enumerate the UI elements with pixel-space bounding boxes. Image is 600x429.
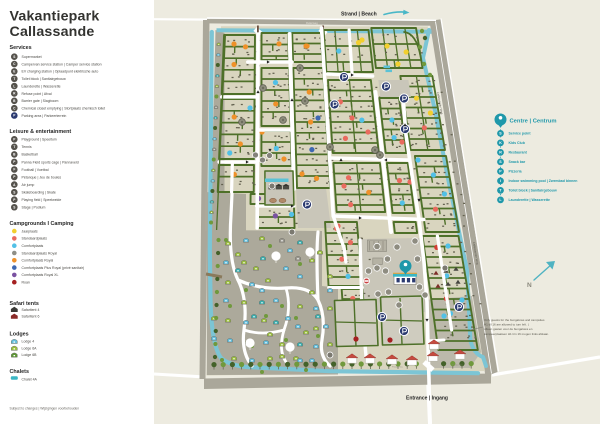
svg-text:Campgrounds I Camping: Campgrounds I Camping [10,221,74,227]
svg-text:Air jump: Air jump [22,183,35,187]
svg-text:Chalets: Chalets [10,369,29,375]
svg-text:Barrier gate | Slagboom: Barrier gate | Slagboom [22,99,59,103]
svg-text:Parking area | Parkeerterrein: Parking area | Parkeerterrein [22,114,67,118]
svg-text:Chemical closet emptying | Sto: Chemical closet emptying | Stortplaats c… [22,106,106,110]
svg-text:Only guests for the bungalows: Only guests for the bungalows and campsi… [484,318,545,322]
svg-text:Services: Services [10,45,32,51]
svg-text:S: S [13,55,15,59]
svg-text:Panna Field sports cage | Pann: Panna Field sports cage | Pannaveld [22,160,79,164]
svg-text:Campervan service station | Ca: Campervan service station | Camper servi… [22,62,102,66]
svg-text:Roan: Roan [22,281,30,285]
svg-text:K: K [499,141,502,145]
svg-text:Kids Club: Kids Club [509,141,525,145]
svg-text:Pétanque | Jeu de boules: Pétanque | Jeu de boules [22,175,62,179]
svg-text:L: L [13,84,15,88]
svg-text:Standaardplaats Royal: Standaardplaats Royal [22,251,58,255]
svg-text:kampeerplaatsen H1 t/m 16 moge: kampeerplaatsen H1 t/m 16 mogen links af… [484,332,549,336]
svg-text:Restaurant: Restaurant [509,151,528,155]
svg-text:S: S [13,190,15,194]
svg-text:Lodge 4: Lodge 4 [22,340,35,344]
svg-text:Strand | Beach: Strand | Beach [341,11,377,17]
svg-text:Lodge 6B: Lodge 6B [22,353,38,357]
svg-text:Jaarplaats: Jaarplaats [22,229,38,233]
svg-text:Service point: Service point [509,132,532,136]
svg-text:Playing field | Speelweide: Playing field | Speelweide [22,198,62,202]
svg-text:Callassande: Callassande [10,24,95,40]
svg-text:Launderette | Wasserette: Launderette | Wasserette [509,198,551,202]
svg-text:Refuse point | Afval: Refuse point | Afval [22,92,52,96]
svg-text:Pizzeria: Pizzeria [509,170,522,174]
svg-text:Toilet block | Sanitairgebouw: Toilet block | Sanitairgebouw [509,189,557,193]
svg-text:Standaardplaats: Standaardplaats [22,237,48,241]
svg-text:Football | Voetbal: Football | Voetbal [22,168,49,172]
svg-text:Toilet block | Sanitairgebouw: Toilet block | Sanitairgebouw [22,77,67,81]
svg-text:I: I [500,179,501,183]
svg-text:Comfortplaats Plus Royal (priv: Comfortplaats Plus Royal (privé sanitair… [22,266,85,270]
svg-text:Ruiterweg: Ruiterweg [306,21,318,25]
svg-text:Indoor swimming pool | Zwembad: Indoor swimming pool | Zwembad binnen [509,179,578,183]
svg-text:S: S [13,205,15,209]
svg-text:Subject to changes | Wijziging: Subject to changes | Wijzigingen voorbeh… [10,407,80,411]
svg-text:T: T [13,77,15,81]
svg-text:Supermarket: Supermarket [22,55,42,59]
svg-text:E: E [13,70,15,74]
svg-text:Snack bar: Snack bar [509,160,526,164]
svg-text:Safaritent 6: Safaritent 6 [22,315,40,319]
svg-text:Basketball: Basketball [22,153,38,157]
svg-text:Centre | Centrum: Centre | Centrum [510,118,557,124]
svg-text:Vakantiepark: Vakantiepark [10,9,100,25]
svg-text:R: R [499,151,502,155]
svg-text:Comfortplaats: Comfortplaats [22,244,44,248]
svg-text:Lodge 6A: Lodge 6A [22,346,38,350]
svg-text:Safaritent 4: Safaritent 4 [22,308,40,312]
svg-text:Comfortplaats Royal: Comfortplaats Royal [22,259,54,263]
svg-text:Alleen gasten voor de bungalow: Alleen gasten voor de bungalows en [484,327,533,331]
svg-text:Comfortplaats Royal XL: Comfortplaats Royal XL [22,273,59,277]
svg-text:Tennis: Tennis [22,145,32,149]
svg-text:T: T [13,145,15,149]
svg-text:Playground | Speeltuin: Playground | Speeltuin [22,138,57,142]
svg-text:Entrance | Ingang: Entrance | Ingang [406,396,448,402]
svg-text:Safari tents: Safari tents [10,301,39,307]
svg-text:H1 till 16 are allowed to turn: H1 till 16 are allowed to turn left. | [484,323,529,327]
svg-text:Launderette | Wasserette: Launderette | Wasserette [22,84,61,88]
svg-text:Lodges: Lodges [10,332,29,338]
svg-text:F: F [13,168,15,172]
svg-text:Chalet 4A: Chalet 4A [22,377,38,381]
svg-text:EV charging station | Oplaadpu: EV charging station | Oplaadpunt elektri… [22,70,99,74]
svg-text:Stage | Podium: Stage | Podium [22,206,46,210]
svg-text:Leisure & entertainment: Leisure & entertainment [10,129,72,135]
svg-text:Skateboarding | Skate: Skateboarding | Skate [22,190,56,194]
svg-text:N: N [527,282,532,289]
